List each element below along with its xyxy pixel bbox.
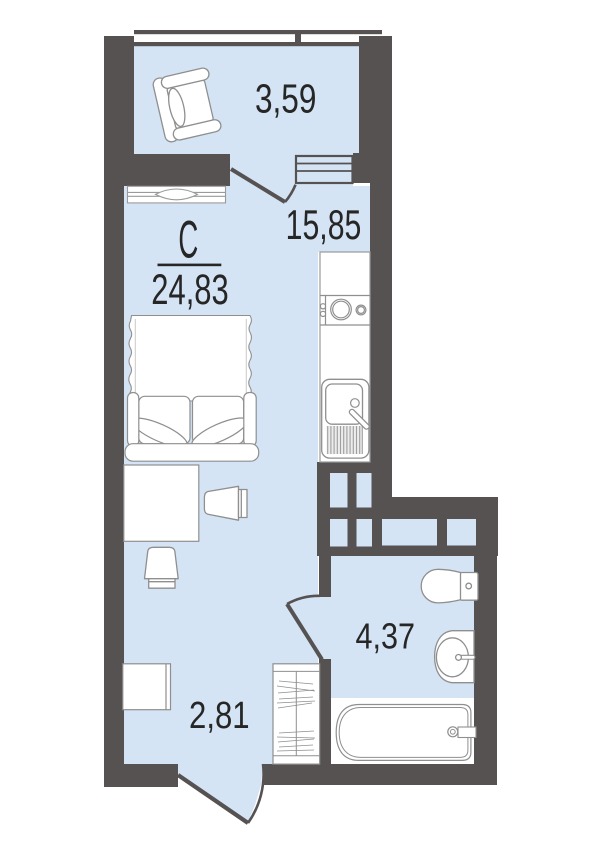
svg-text:15,85: 15,85 xyxy=(286,201,362,248)
svg-text:3,59: 3,59 xyxy=(255,76,316,122)
svg-text:2,81: 2,81 xyxy=(189,695,250,737)
svg-text:4,37: 4,37 xyxy=(356,617,416,657)
svg-text:С: С xyxy=(178,210,198,269)
svg-text:24,83: 24,83 xyxy=(151,265,228,313)
